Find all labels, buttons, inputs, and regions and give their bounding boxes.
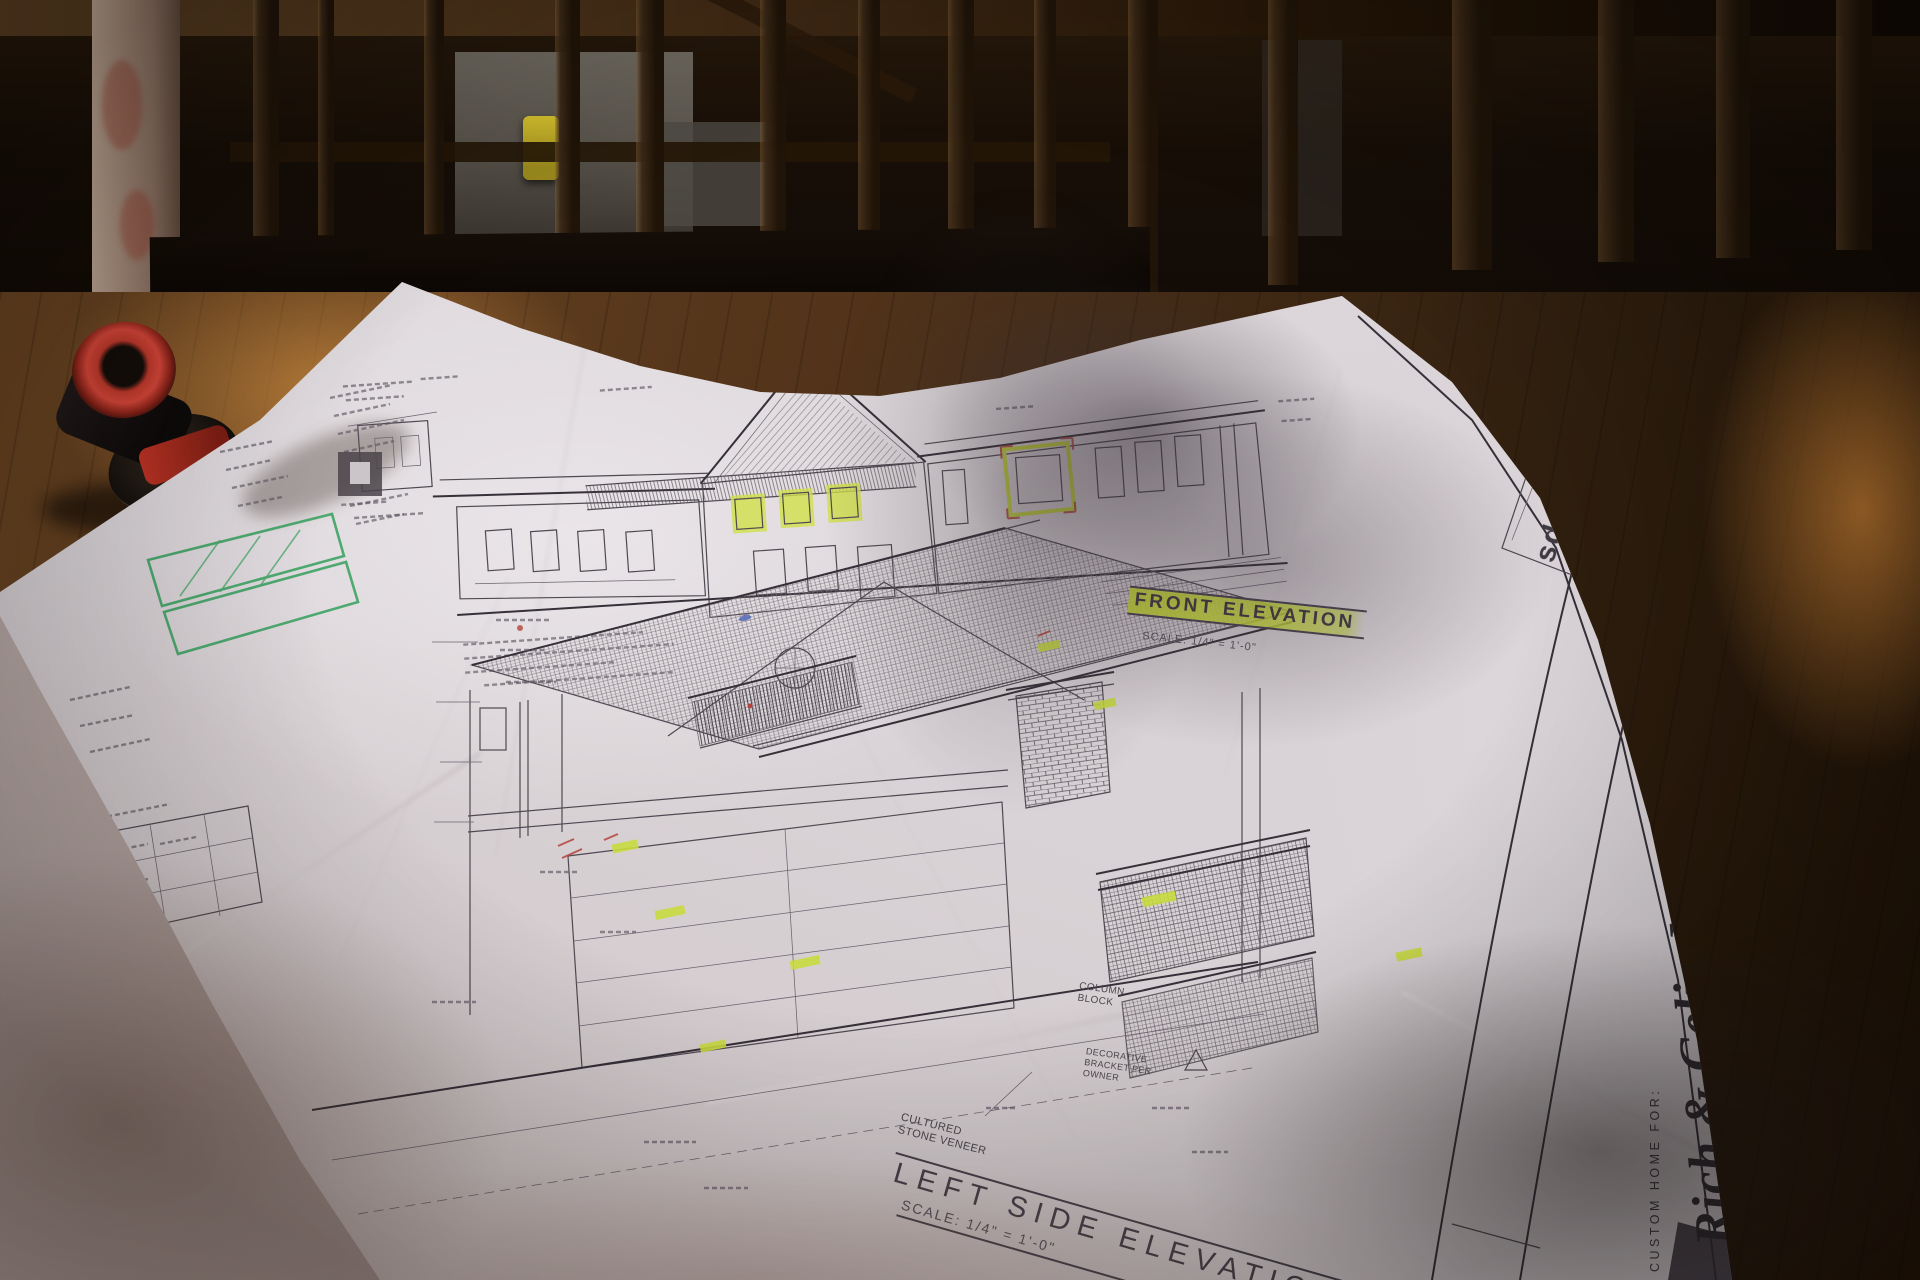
construction-site-photo: FRONT ELEVATION SCALE: 1/4" = 1'-0" LEFT… [0, 0, 1920, 1280]
custom-home-label: CUSTOM HOME FOR: [1648, 952, 1662, 1272]
wall-stud [1836, 0, 1872, 250]
wall-stud [1268, 0, 1298, 285]
wall-stud [1452, 0, 1492, 270]
wall-stud [424, 0, 444, 250]
green-pen-marks [148, 514, 358, 654]
wall-stud [1716, 0, 1750, 258]
wall-stud [1598, 0, 1634, 262]
